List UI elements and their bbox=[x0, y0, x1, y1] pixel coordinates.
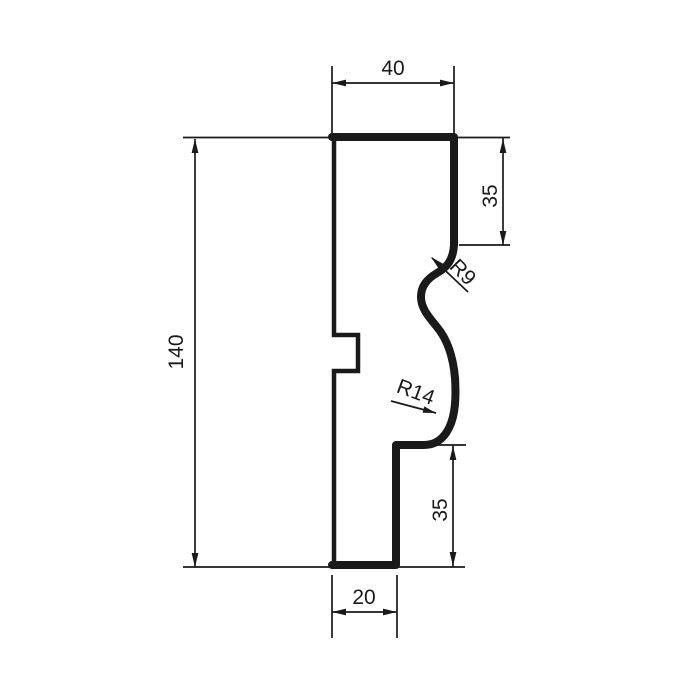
arrowhead-up-icon bbox=[500, 139, 507, 153]
arrowhead-down-icon bbox=[450, 552, 457, 566]
arrowhead-right-icon bbox=[440, 80, 454, 87]
arrowhead-up-icon bbox=[450, 446, 457, 460]
arrowhead-up-icon bbox=[192, 139, 199, 153]
dim-upper-right-height-label: 35 bbox=[479, 184, 502, 207]
arrowhead-right-icon bbox=[383, 609, 397, 616]
dim-lower-right-height-label: 35 bbox=[429, 498, 452, 521]
profile-back-edge-notch bbox=[334, 139, 358, 563]
arrowhead-down-icon bbox=[192, 553, 199, 567]
technical-drawing-canvas: 40 35 R9 140 R14 35 20 bbox=[0, 0, 686, 686]
dim-top-width-label: 40 bbox=[381, 57, 404, 80]
dim-overall-height-label: 140 bbox=[165, 334, 188, 369]
arrowhead-down-icon bbox=[500, 231, 507, 245]
dim-lower-radius-label: R14 bbox=[394, 375, 438, 410]
molding-profile-drawing: 40 35 R9 140 R14 35 20 bbox=[0, 0, 686, 686]
arrowhead-left-icon bbox=[332, 80, 346, 87]
arrowheads-layer bbox=[192, 80, 507, 616]
dim-bottom-width-label: 20 bbox=[352, 586, 375, 609]
arrowhead-left-icon bbox=[332, 609, 346, 616]
dimension-lines-layer bbox=[183, 66, 510, 638]
